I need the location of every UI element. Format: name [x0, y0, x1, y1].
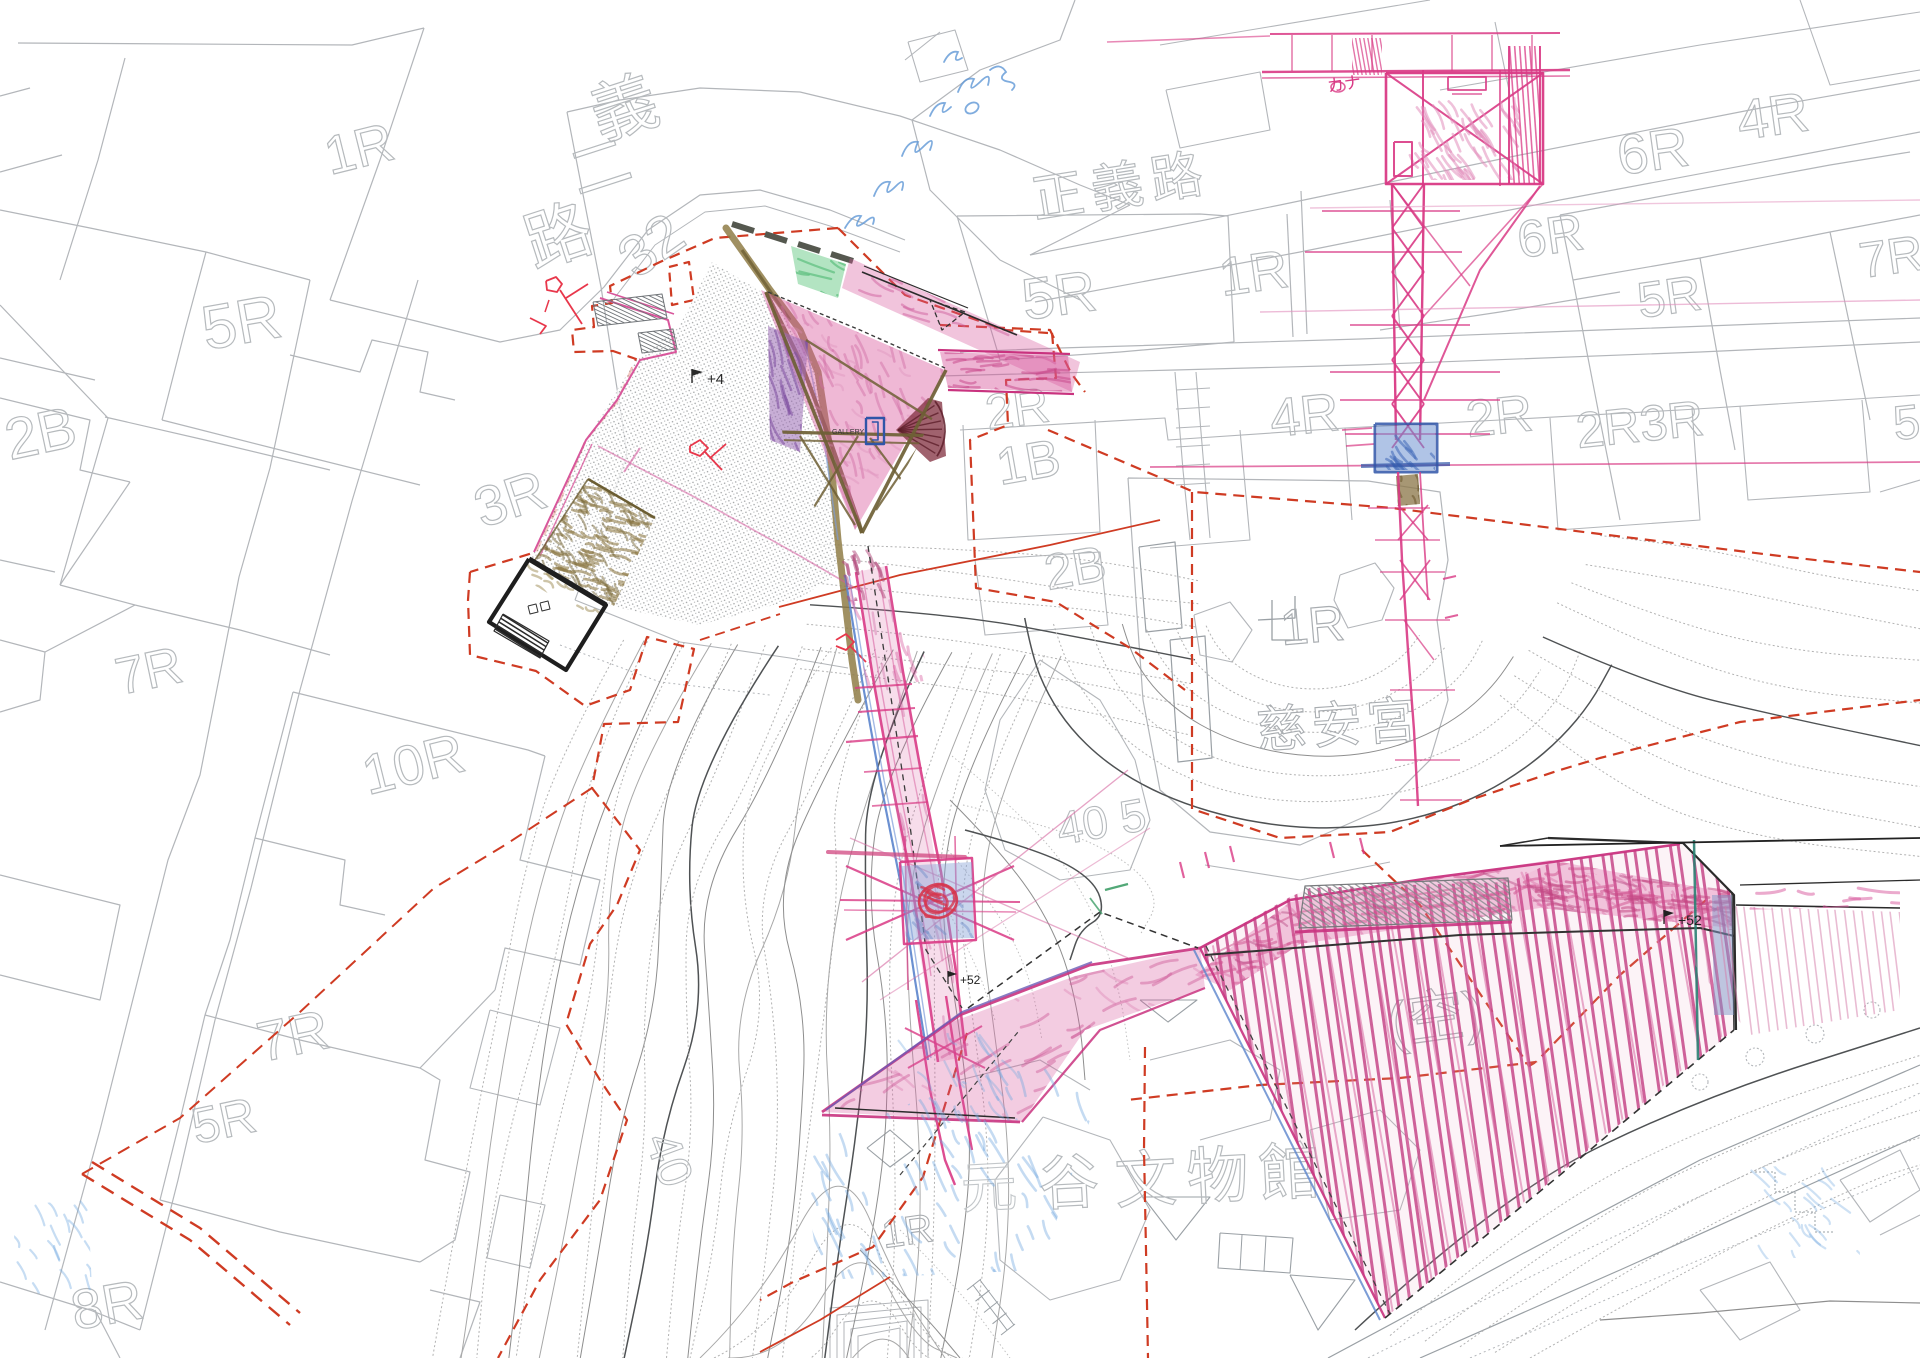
svg-text:4R: 4R	[1267, 382, 1342, 449]
svg-text:1R: 1R	[1215, 239, 1292, 308]
svg-text:7R: 7R	[1856, 225, 1920, 289]
svg-text:6R: 6R	[1613, 115, 1693, 187]
svg-text:+52: +52	[1678, 912, 1702, 928]
svg-text:+52: +52	[960, 973, 981, 987]
svg-text:6R: 6R	[1514, 203, 1588, 270]
svg-text:5R: 5R	[1018, 258, 1100, 333]
svg-text:+4: +4	[707, 371, 724, 388]
svg-text:5: 5	[1891, 395, 1920, 451]
svg-text:慈安宮: 慈安宮	[1255, 692, 1424, 759]
svg-text:5R: 5R	[1634, 265, 1705, 329]
svg-text:谷: 谷	[1037, 1148, 1100, 1218]
svg-text:4R: 4R	[1733, 80, 1813, 152]
svg-text:2R: 2R	[1463, 384, 1535, 449]
svg-text:1B: 1B	[992, 429, 1065, 497]
svg-text:GALLERY: GALLERY	[832, 429, 864, 436]
svg-text:8R: 8R	[66, 1267, 147, 1341]
svg-text:元: 元	[959, 1154, 1018, 1220]
svg-text:1R: 1R	[1278, 595, 1347, 656]
svg-text:1R: 1R	[879, 1206, 936, 1257]
svg-text:5R: 5R	[196, 282, 286, 364]
